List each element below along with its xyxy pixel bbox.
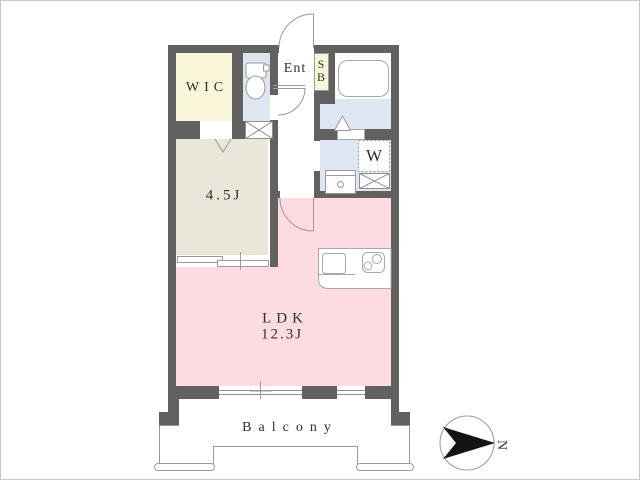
wall-sb-bath: [329, 45, 335, 99]
wash-basin-icon: [326, 171, 356, 194]
entrance-label: Ent: [284, 61, 306, 77]
wall-bottom-3: [365, 386, 399, 399]
washroom-door-opening: [314, 141, 320, 171]
washer-label: W: [366, 146, 382, 166]
wall-bottom-2: [302, 386, 337, 399]
storage-cross-under-toilet: [246, 122, 273, 139]
toilet-door-opening: [270, 95, 278, 120]
ldk-label: LDK: [262, 311, 308, 328]
compass-north-label: N: [493, 440, 509, 450]
floor-plan-canvas: WIC Ent S B W 4.5J LDK 12.3J Balcony N: [0, 0, 640, 480]
western-room-label: 4.5J: [206, 188, 243, 205]
wall-top-left: [168, 45, 279, 53]
wall-left-step: [159, 412, 179, 425]
wic-opening: [200, 121, 232, 139]
wic-label: WIC: [186, 80, 228, 96]
ldk-door-opening: [280, 191, 314, 198]
wall-hall-bottom-stub: [270, 191, 280, 198]
sink-icon: [323, 254, 346, 274]
shoe-box-label-line2: B: [317, 71, 325, 84]
compass-icon: [440, 416, 495, 470]
window-small: [337, 386, 365, 399]
kitchen-counter: [319, 249, 392, 289]
bathtub-icon: [339, 61, 389, 97]
balcony-label: Balcony: [242, 420, 338, 436]
wall-left-foot: [168, 391, 179, 414]
wall-right-step: [391, 412, 410, 425]
ldk-size-label: 12.3J: [261, 327, 303, 344]
shoe-box-label: S B: [317, 58, 325, 84]
wall-wic-toilet: [232, 53, 243, 123]
storage-cross-washroom: [360, 174, 390, 189]
wall-left: [168, 45, 176, 399]
wall-right: [391, 45, 399, 414]
entrance-door-arc: [279, 14, 314, 48]
wall-top-right: [314, 45, 399, 53]
entrance-opening: [279, 44, 314, 54]
stove-icon: [363, 253, 385, 273]
